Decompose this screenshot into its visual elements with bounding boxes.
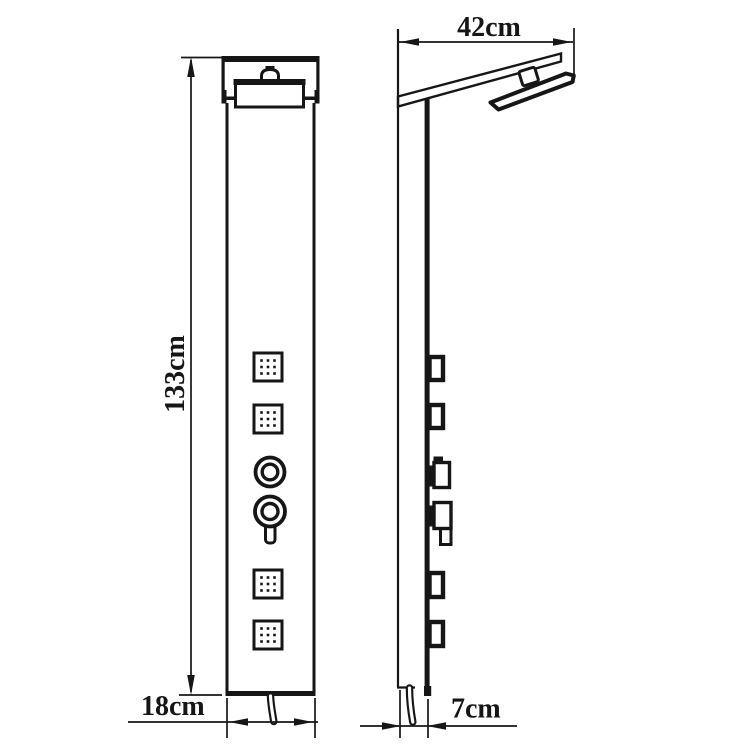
- top-bar-left-side: [222, 56, 225, 93]
- arrow-right-icon: [294, 718, 313, 725]
- height-label: 133cm: [160, 335, 191, 413]
- shower-head-front: [234, 66, 306, 107]
- arrow-left-icon: [427, 722, 446, 729]
- shower-head-top-edge: [234, 79, 306, 85]
- arrow-left-icon: [400, 38, 419, 45]
- front-view: 133cm: [128, 56, 320, 738]
- side-jet: [430, 357, 444, 380]
- knob-body: [434, 463, 450, 488]
- hose-side: [410, 688, 413, 722]
- top-bar-right-side: [316, 56, 319, 93]
- panel-body-side: [397, 29, 431, 696]
- body-jet: [254, 353, 282, 381]
- control-lever-side: [428, 503, 452, 545]
- arrow-up-icon: [187, 57, 195, 77]
- dimension-depth-top: 42cm: [399, 12, 574, 80]
- control-knob-side: [428, 457, 450, 488]
- depth-top-label: 42cm: [457, 12, 521, 43]
- arrow-right-icon: [553, 38, 572, 45]
- control-lever: [255, 497, 285, 544]
- panel-right-edge: [313, 103, 316, 693]
- top-bar-right-stub: [304, 97, 318, 101]
- dimension-width: 18cm: [128, 691, 318, 738]
- side-jet: [430, 573, 444, 597]
- panel-body-front: [226, 103, 316, 696]
- side-jet: [430, 405, 444, 428]
- arrow-left-icon: [229, 718, 248, 725]
- drawing-canvas: 133cm: [0, 0, 750, 750]
- panel-face-foot: [424, 686, 431, 696]
- body-jet: [254, 570, 282, 598]
- side-jet: [430, 622, 444, 646]
- side-view: 42cm: [360, 12, 574, 738]
- depth-bottom-label: 7cm: [451, 694, 501, 725]
- width-label: 18cm: [141, 691, 205, 722]
- top-bar-left-stub: [222, 97, 236, 101]
- top-bar-edge: [222, 56, 320, 62]
- panel-face-line: [425, 99, 430, 688]
- body-jet: [254, 405, 282, 433]
- lever-handle-side: [441, 528, 452, 545]
- hose-front: [271, 696, 274, 722]
- body-jet: [254, 621, 282, 649]
- control-knob-ring: [256, 458, 285, 487]
- lever-body: [434, 503, 451, 529]
- dimension-depth-bottom: 7cm: [360, 690, 517, 738]
- dimension-height: 133cm: [160, 57, 222, 695]
- shower-panel-dimension-drawing: 133cm: [0, 0, 750, 750]
- panel-left-edge: [226, 103, 229, 693]
- ball-joint-nub: [266, 66, 275, 71]
- shower-arm-side: [398, 54, 574, 110]
- arrow-right-icon: [382, 722, 401, 729]
